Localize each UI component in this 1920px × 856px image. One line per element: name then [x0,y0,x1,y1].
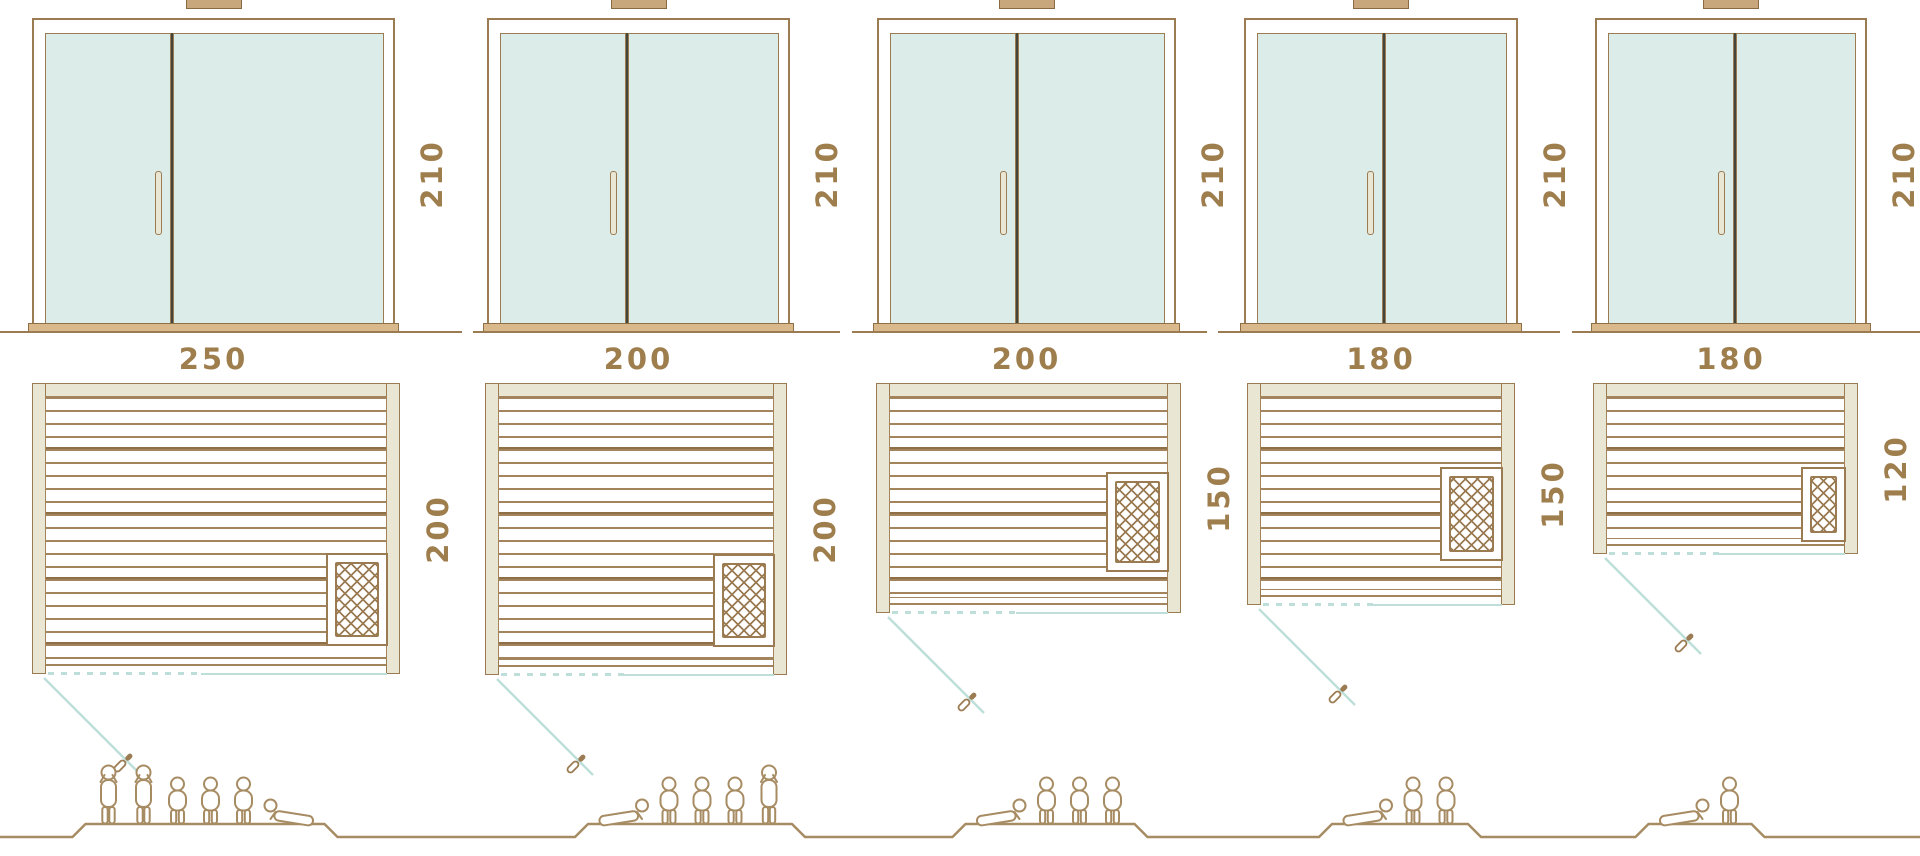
door-opening-dashed-line [1609,552,1720,555]
person-stand-icon [101,766,117,824]
person-lie-icon [1343,800,1392,827]
door-handle-icon [1718,171,1725,235]
door-elevation [1244,18,1518,330]
plan-depth-label: 200 [808,479,842,579]
floor-plan [485,383,787,675]
person-sit-icon [169,778,186,824]
door-opening-dashed-line [48,672,203,675]
floor-plan [876,383,1181,613]
door-glass-left [1257,33,1383,326]
heater-box [1106,472,1169,572]
person-sit-icon [1405,778,1422,824]
heater-box [326,553,388,646]
plan-depth-label: 200 [421,479,455,579]
person-lie-icon [976,800,1025,827]
heater-grate-icon [1810,476,1837,533]
plan-depth-label: 150 [1536,444,1570,544]
plan-wall-left [485,383,499,675]
plan-depth-label: 150 [1202,448,1236,548]
door-handle-icon [1000,171,1007,235]
person-sit-icon [202,778,219,824]
plan-front-line [201,673,387,675]
door-top-cap [611,0,667,9]
door-glass-right [1385,33,1507,326]
floor-plan [1593,383,1858,554]
person-stand-icon [136,766,152,824]
plan-front-line [1016,612,1168,614]
width-label: 180 [1671,342,1791,376]
door-top-cap [186,0,242,9]
seating-platform-line [840,824,1215,837]
plan-wall-top [1247,383,1515,397]
person-sit-icon [1038,778,1055,824]
door-swing-icon [1603,556,1733,681]
plan-wall-right [386,383,400,674]
ground-line [473,331,840,333]
capacity-figures [1565,760,1920,840]
ground-line [1572,331,1920,333]
door-swing-icon [1257,607,1387,732]
door-elevation [1595,18,1867,330]
plan-wall-top [485,383,787,397]
door-divider [626,33,628,326]
plan-wall-left [1593,383,1607,554]
plan-front-line [1715,553,1845,555]
heater-box [1440,467,1503,560]
person-sit-icon [727,778,744,824]
heater-grate-icon [335,562,379,637]
plan-wall-top [876,383,1181,397]
plan-wall-right [773,383,787,675]
width-label: 180 [1321,342,1441,376]
door-height-label: 210 [415,124,449,224]
plan-depth-label: 120 [1879,419,1913,519]
sauna-sizes-diagram: 250 210 200 [0,0,1920,856]
plan-wall-top [1593,383,1858,397]
person-sit-icon [235,778,252,824]
heater-box [1801,467,1846,542]
door-elevation [877,18,1176,330]
door-handle-icon [1367,171,1374,235]
person-lie-icon [1659,800,1708,827]
door-top-cap [1703,0,1759,9]
seating-platform-line [1215,824,1565,837]
door-glass-right [628,33,779,326]
door-handle-icon [155,171,162,235]
floor-plan [1247,383,1515,605]
capacity-figures [840,760,1215,840]
width-label: 250 [154,342,274,376]
plan-wall-right [1167,383,1181,613]
plan-wall-left [32,383,46,674]
door-glass-left [500,33,626,326]
person-sit-icon [1721,778,1738,824]
plan-threshold-line [890,603,1167,605]
door-height-label: 210 [1887,124,1920,224]
door-swing-icon [886,615,1016,740]
width-label: 200 [579,342,699,376]
door-glass-left [45,33,171,326]
ground-line [1218,331,1560,333]
door-divider [1383,33,1385,326]
plan-wall-right [1844,383,1858,554]
door-glass-right [1736,33,1856,326]
person-sit-icon [1104,778,1121,824]
person-stand-icon [761,766,777,824]
seating-platform-line [0,824,455,837]
door-glass-right [173,33,384,326]
person-sit-icon [661,778,678,824]
door-glass-right [1018,33,1165,326]
door-height-label: 210 [810,124,844,224]
person-sit-icon [1438,778,1455,824]
capacity-figures [0,760,455,840]
door-opening-dashed-line [501,673,628,676]
door-divider [171,33,173,326]
person-sit-icon [1071,778,1088,824]
seating-platform-line [455,824,840,837]
door-glass-left [1608,33,1734,326]
door-height-label: 210 [1196,124,1230,224]
seating-platform-line [1565,824,1920,837]
door-divider [1016,33,1018,326]
person-lie-icon [599,800,648,827]
door-top-cap [1353,0,1409,9]
plan-threshold-line [499,665,773,667]
heater-grate-icon [1115,481,1160,563]
capacity-figures [1215,760,1565,840]
plan-wall-right [1501,383,1515,605]
plan-threshold-line [46,664,386,666]
plan-wall-left [876,383,890,613]
heater-grate-icon [722,563,766,638]
plan-threshold-line [1261,595,1501,597]
door-glass-left [890,33,1016,326]
width-label: 200 [967,342,1087,376]
door-divider [1734,33,1736,326]
plan-front-line [624,674,774,676]
plan-threshold-line [1607,544,1844,546]
heater-box [713,554,775,647]
plan-wall-left [1247,383,1261,605]
floor-plan [32,383,400,674]
plan-front-line [1370,604,1502,606]
door-elevation [32,18,395,330]
person-lie-icon [265,800,314,827]
door-handle-icon [610,171,617,235]
heater-grate-icon [1449,476,1494,551]
door-top-cap [999,0,1055,9]
door-opening-dashed-line [892,611,1020,614]
person-sit-icon [694,778,711,824]
ground-line [0,331,462,333]
plan-wall-top [32,383,400,397]
door-elevation [487,18,790,330]
ground-line [852,331,1207,333]
door-height-label: 210 [1538,124,1572,224]
door-opening-dashed-line [1263,603,1376,606]
capacity-figures [455,760,840,840]
